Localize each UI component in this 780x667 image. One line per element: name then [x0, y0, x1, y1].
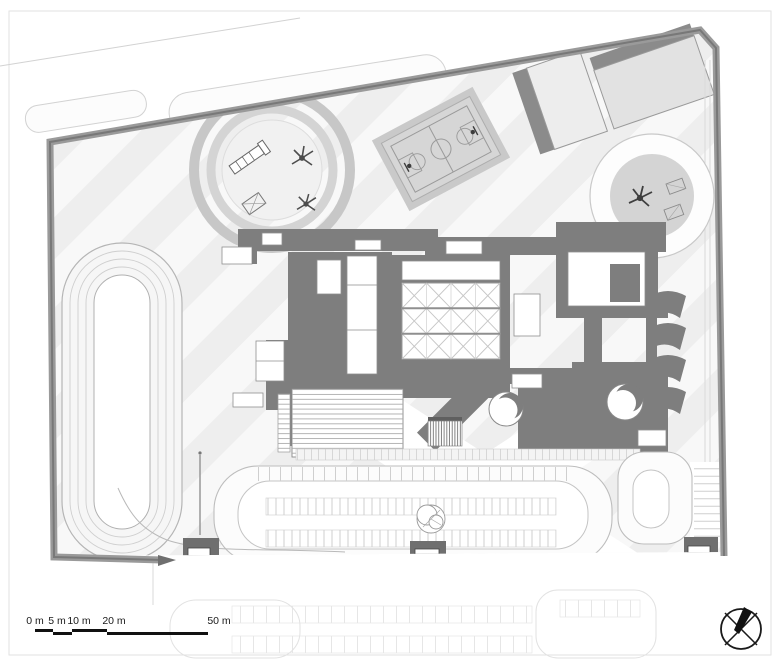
running-track: [62, 243, 182, 561]
parking-island: [633, 470, 669, 528]
parking-east: [618, 452, 720, 544]
rooftop-unit: [262, 233, 282, 245]
site-plan-drawing: 0 m 5 m 10 m 20 m 50 m: [0, 0, 780, 667]
white-volume: [233, 393, 263, 407]
parked-car-row: [232, 606, 532, 623]
white-volume: [638, 430, 666, 446]
white-volume: [317, 260, 341, 294]
scale-label-10m: 10 m: [67, 615, 91, 627]
gym-skylight: [402, 283, 500, 359]
kiosk: [410, 541, 446, 563]
white-volume: [512, 374, 542, 388]
site-plan-page: 0 m 5 m 10 m 20 m 50 m: [0, 0, 780, 667]
kiosk-front: [415, 549, 439, 559]
scale-bar: 0 m 5 m 10 m 20 m 50 m: [26, 615, 231, 634]
boundary-arrow-end: [158, 555, 176, 566]
north-arrow-icon: [721, 607, 761, 649]
roof-north-strip: [425, 237, 556, 255]
pergola-walkway: [296, 449, 640, 460]
white-bar-volume: [347, 256, 377, 374]
stair-landing: [428, 417, 462, 421]
scale-label-0m: 0 m: [26, 615, 44, 627]
east-wing-dark-block: [610, 264, 640, 302]
pole-top: [198, 451, 201, 454]
track-infield: [94, 275, 150, 529]
parked-car-row: [560, 600, 640, 617]
roof-south-core: [518, 378, 572, 452]
amphitheater-stripes: [292, 389, 403, 457]
rooftop-unit: [355, 240, 381, 250]
roof-east-wing-west-band: [556, 252, 568, 310]
street-bottom: [153, 560, 656, 658]
parking-stalls-middle: [266, 498, 556, 515]
parking-stalls-east: [694, 464, 720, 540]
rooftop-unit: [446, 241, 482, 254]
white-volume: [514, 294, 540, 336]
kiosk-front: [188, 548, 210, 558]
dome-highlight: [493, 398, 518, 423]
annex-building: [222, 247, 252, 264]
scale-label-20m: 20 m: [102, 615, 126, 627]
scale-label-5m: 5 m: [48, 615, 66, 627]
stair-treads: [428, 421, 462, 446]
parking-stalls-north: [250, 467, 575, 481]
street-edge-line: [0, 18, 300, 66]
amphitheater-sliver-stripes: [278, 394, 290, 452]
scale-label-50m: 50 m: [207, 615, 231, 627]
pergola-slats: [296, 449, 640, 460]
roof-east-link: [584, 302, 602, 364]
tree: [417, 505, 445, 533]
parked-car-row: [232, 636, 532, 653]
dome-highlight: [610, 390, 636, 416]
amphitheater-steps: [278, 389, 403, 457]
kiosk-front: [688, 546, 710, 556]
gym-north-strip: [402, 261, 500, 280]
kiosk: [684, 537, 718, 562]
kiosk: [183, 538, 219, 562]
stair-run: [428, 417, 462, 446]
annex-shadow: [252, 247, 257, 264]
